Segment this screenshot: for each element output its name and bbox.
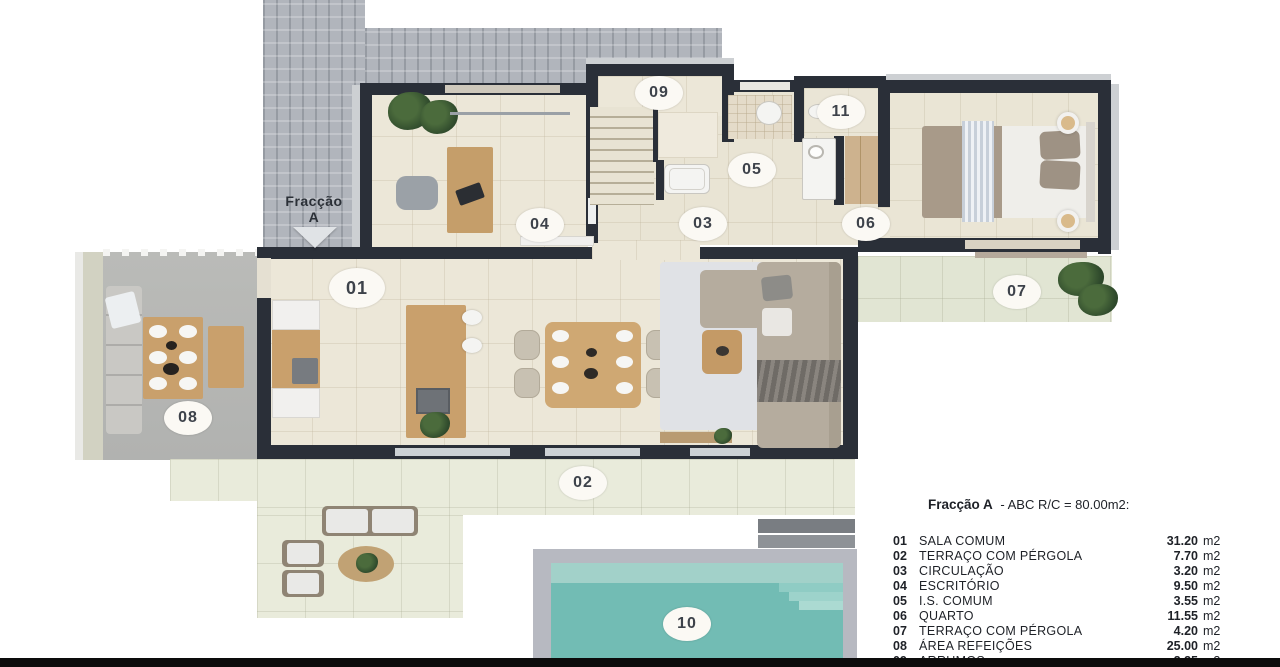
bed-pillow <box>1039 160 1080 190</box>
legend-row: 06 QUARTO 11.55 m2 <box>893 609 1229 624</box>
fraction-marker-line1: Fracção <box>285 193 342 209</box>
outdoor-sofa-cushions <box>372 509 414 533</box>
sliding-door-glass <box>690 448 750 456</box>
legend-row-name: TERRAÇO COM PÉRGOLA <box>919 549 1142 563</box>
terrace02-floor-left <box>170 459 257 501</box>
dinner-plate <box>149 377 167 390</box>
legend-row-name: ESCRITÓRIO <box>919 579 1142 593</box>
outdoor-sofa-cushions <box>326 509 368 533</box>
bathtub-inner <box>669 168 705 190</box>
pool-steps <box>799 601 843 610</box>
room11-left-wall <box>794 76 804 142</box>
dining08-wall-strip <box>83 252 103 460</box>
toilet <box>756 101 782 125</box>
legend-fraction-name: Fracção A <box>928 497 993 512</box>
room-label-01: 01 <box>329 268 385 308</box>
kitchen-counter <box>272 300 320 330</box>
legend: Fracção A - ABC R/C = 80.00m2: 01 SALA C… <box>893 497 1233 667</box>
legend-row-num: 05 <box>893 594 919 608</box>
terrace07-left-wall <box>845 250 858 322</box>
legend-row-area: 3.55 <box>1142 594 1198 608</box>
serving-bowl <box>163 363 179 375</box>
entrance-arrow-icon <box>293 227 337 248</box>
ceiling-light <box>1057 112 1079 134</box>
dining-chair <box>514 368 540 398</box>
dinner-plate <box>552 382 569 394</box>
pool-access-step <box>758 519 855 533</box>
legend-row-num: 08 <box>893 639 919 653</box>
office-chair <box>396 176 438 210</box>
legend-row-area: 25.00 <box>1142 639 1198 653</box>
legend-row-area: 31.20 <box>1142 534 1198 548</box>
office-left-wall <box>360 83 372 247</box>
legend-row-unit: m2 <box>1198 594 1229 608</box>
dinner-plate <box>616 382 633 394</box>
dinner-plate <box>616 330 633 342</box>
bottom-crop-bar <box>0 658 1280 667</box>
sofa-cushion <box>761 274 793 301</box>
legend-row-unit: m2 <box>1198 624 1229 638</box>
serving-bowl <box>584 368 598 379</box>
legend-row-area: 3.20 <box>1142 564 1198 578</box>
legend-row-unit: m2 <box>1198 579 1229 593</box>
legend-row-unit: m2 <box>1198 609 1229 623</box>
legend-row: 07 TERRAÇO COM PÉRGOLA 4.20 m2 <box>893 624 1229 639</box>
room-label-08: 08 <box>164 401 212 435</box>
outdoor-chair-cushion <box>287 573 319 594</box>
wardrobe-divider <box>860 136 861 204</box>
bed-runner <box>962 121 994 222</box>
room-label-09: 09 <box>635 76 683 110</box>
room-label-02: 02 <box>559 466 607 500</box>
legend-title: Fracção A - ABC R/C = 80.00m2: <box>928 497 1129 512</box>
coffee-table-bowl <box>716 346 729 356</box>
legend-row-num: 02 <box>893 549 919 563</box>
pool-steps <box>779 583 843 592</box>
legend-row-name: TERRAÇO COM PÉRGOLA <box>919 624 1142 638</box>
wardrobe <box>845 136 878 204</box>
dinner-plate <box>179 325 197 338</box>
dinner-plate <box>552 356 569 368</box>
room-label-03: 03 <box>679 207 727 241</box>
room-label-05: 05 <box>728 153 776 187</box>
legend-row-unit: m2 <box>1198 549 1229 563</box>
legend-row: 02 TERRAÇO COM PÉRGOLA 7.70 m2 <box>893 549 1229 564</box>
washbasin-sink <box>808 145 824 159</box>
legend-row-name: I.S. COMUM <box>919 594 1142 608</box>
bar-stool <box>462 310 482 325</box>
serving-bowl <box>586 348 597 357</box>
fraction-marker: Fracção A <box>285 193 342 225</box>
legend-row-name: ÁREA REFEIÇÕES <box>919 639 1142 653</box>
legend-rows: 01 SALA COMUM 31.20 m2 02 TERRAÇO COM PÉ… <box>893 534 1229 667</box>
floor-plan: Fracção A 01 02 03 04 05 06 07 08 09 10 … <box>0 0 1280 667</box>
room-label-11: 11 <box>817 95 865 129</box>
room-label-07: 07 <box>993 275 1041 309</box>
legend-row-name: CIRCULAÇÃO <box>919 564 1142 578</box>
legend-row-area: 7.70 <box>1142 549 1198 563</box>
legend-title-rest: - ABC R/C = 80.00m2: <box>1000 497 1129 512</box>
pool-shallow-ledge <box>551 563 843 583</box>
legend-row: 04 ESCRITÓRIO 9.50 m2 <box>893 579 1229 594</box>
dinner-plate <box>149 325 167 338</box>
living-top-wall-left <box>257 247 592 259</box>
terrace07-plant <box>1078 284 1118 316</box>
living-left-door-opening <box>257 258 271 298</box>
dining08-outer-trim <box>75 252 83 460</box>
office-shelf <box>450 112 570 115</box>
sliding-door-glass <box>545 448 640 456</box>
legend-row: 03 CIRCULAÇÃO 3.20 m2 <box>893 564 1229 579</box>
legend-row: 05 I.S. COMUM 3.55 m2 <box>893 594 1229 609</box>
storage09-top-wall <box>586 64 734 76</box>
legend-row-area: 11.55 <box>1142 609 1198 623</box>
legend-row-num: 07 <box>893 624 919 638</box>
legend-row-unit: m2 <box>1198 564 1229 578</box>
legend-row: 08 ÁREA REFEIÇÕES 25.00 m2 <box>893 639 1229 654</box>
legend-row-num: 04 <box>893 579 919 593</box>
tub-enclosure-wall <box>656 160 664 200</box>
island-sink <box>416 388 450 414</box>
dining-chair <box>514 330 540 360</box>
legend-row: 01 SALA COMUM 31.20 m2 <box>893 534 1229 549</box>
bedroom-top-wall <box>886 80 1111 93</box>
legend-row-area: 4.20 <box>1142 624 1198 638</box>
serving-bowl <box>166 341 177 350</box>
legend-row-area: 9.50 <box>1142 579 1198 593</box>
sofa-blanket <box>757 360 841 402</box>
staircase <box>590 107 654 205</box>
bed-headboard <box>1086 122 1095 222</box>
room-label-10: 10 <box>663 607 711 641</box>
storage09-left-wall <box>586 64 598 110</box>
dinner-plate <box>616 356 633 368</box>
legend-row-name: QUARTO <box>919 609 1142 623</box>
bedroom-window-sill <box>965 240 1080 249</box>
sliding-door-glass <box>395 448 510 456</box>
room-label-06: 06 <box>842 207 890 241</box>
stove <box>292 358 318 384</box>
legend-row-num: 06 <box>893 609 919 623</box>
dinner-plate <box>149 351 167 364</box>
dinner-plate <box>179 377 197 390</box>
room-label-04: 04 <box>516 208 564 242</box>
living-top-wall-right <box>700 247 858 259</box>
bath-top-window <box>740 82 790 90</box>
sideboard-table <box>208 326 244 388</box>
dinner-plate <box>179 351 197 364</box>
hall-living-opening <box>592 240 700 260</box>
legend-row-unit: m2 <box>1198 534 1229 548</box>
pergola-beams <box>103 249 263 256</box>
room11-top-wall <box>794 76 886 88</box>
dinner-plate <box>552 330 569 342</box>
stair-landing <box>658 112 718 158</box>
legend-row-name: SALA COMUM <box>919 534 1142 548</box>
legend-row-num: 01 <box>893 534 919 548</box>
legend-row-num: 03 <box>893 564 919 578</box>
office-window-sill <box>445 85 560 93</box>
ceiling-light <box>1057 210 1079 232</box>
bed-pillow <box>1039 130 1080 160</box>
outdoor-chair-cushion <box>287 543 319 564</box>
sofa-chaise <box>700 270 762 328</box>
kitchen-counter <box>272 388 320 418</box>
sofa-backrest <box>829 262 841 448</box>
sofa-cushion <box>762 308 792 336</box>
wall-trim <box>1111 84 1119 250</box>
legend-row-unit: m2 <box>1198 639 1229 653</box>
bar-stool <box>462 338 482 353</box>
fraction-marker-line2: A <box>285 209 342 225</box>
pool-steps <box>789 592 843 601</box>
wall-trim <box>352 85 360 247</box>
bedroom-right-wall <box>1098 80 1111 254</box>
pool-access-step <box>758 535 855 548</box>
